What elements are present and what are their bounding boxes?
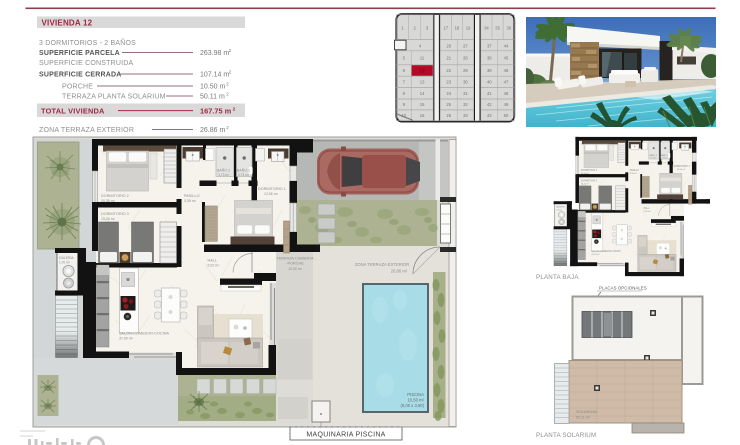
svg-text:50: 50	[504, 113, 509, 118]
svg-text:26.86 m: 26.86 m	[200, 127, 225, 134]
svg-text:15: 15	[420, 102, 425, 107]
svg-text:3 DORMITORIOS - 2 BAÑOS: 3 DORMITORIOS - 2 BAÑOS	[39, 38, 136, 47]
svg-text:ZONA TERRAZA EXTERIOR: ZONA TERRAZA EXTERIOR	[39, 127, 134, 134]
svg-text:37: 37	[487, 43, 492, 48]
svg-text:10.50 m: 10.50 m	[200, 84, 225, 91]
svg-text:17: 17	[443, 26, 448, 31]
svg-text:20: 20	[446, 43, 451, 48]
svg-text:ZONA TERRAZA EXTERIOR: ZONA TERRAZA EXTERIOR	[355, 262, 409, 267]
svg-text:DORMITORIO 2: DORMITORIO 2	[101, 194, 129, 198]
svg-text:PLANTA BAJA: PLANTA BAJA	[536, 274, 579, 281]
svg-text:263.98 m: 263.98 m	[200, 50, 229, 57]
svg-text:3,73 m²: 3,73 m²	[238, 173, 250, 177]
svg-text:BAÑO 2: BAÑO 2	[217, 168, 230, 173]
svg-text:10,50 m²: 10,50 m²	[407, 398, 424, 403]
svg-text:12: 12	[419, 68, 425, 74]
svg-text:31: 31	[463, 91, 468, 96]
svg-text:41: 41	[487, 91, 492, 96]
svg-text:PLACAS OPCIONALES: PLACAS OPCIONALES	[599, 286, 647, 291]
svg-text:1,70 m²: 1,70 m²	[59, 261, 70, 265]
svg-text:11: 11	[420, 55, 425, 60]
svg-text:25: 25	[446, 102, 451, 107]
svg-text:10,50 m²: 10,50 m²	[288, 267, 303, 271]
svg-text:23: 23	[446, 80, 451, 85]
svg-text:107.14 m: 107.14 m	[200, 72, 229, 79]
svg-text:TERRAZA PLANTA SOLARIUM: TERRAZA PLANTA SOLARIUM	[62, 94, 166, 101]
svg-text:SOLARIUM: SOLARIUM	[576, 409, 597, 414]
svg-text:24: 24	[446, 91, 451, 96]
svg-text:44: 44	[504, 43, 509, 48]
svg-text:45: 45	[504, 55, 509, 60]
svg-text:43: 43	[487, 113, 492, 118]
svg-text:40: 40	[487, 80, 492, 85]
svg-text:VIVIENDA 12: VIVIENDA 12	[42, 19, 93, 28]
svg-text:BAÑO 1: BAÑO 1	[237, 168, 250, 173]
svg-text:12,06 m²: 12,06 m²	[264, 192, 279, 196]
svg-text:39: 39	[487, 68, 492, 73]
svg-text:14: 14	[420, 91, 425, 96]
svg-text:29: 29	[463, 68, 468, 73]
svg-text:27: 27	[463, 43, 468, 48]
svg-text:33: 33	[463, 113, 468, 118]
svg-text:SUPERFICIE CONSTRUIDA: SUPERFICIE CONSTRUIDA	[39, 60, 134, 67]
svg-text:37,09 m²: 37,09 m²	[119, 337, 134, 341]
svg-text:HALL: HALL	[208, 259, 218, 263]
svg-text:36: 36	[506, 26, 511, 31]
svg-text:5,02 m²: 5,02 m²	[208, 264, 221, 268]
svg-text:(6,00 x 3,50): (6,00 x 3,50)	[400, 403, 424, 408]
svg-text:26: 26	[446, 113, 451, 118]
svg-text:2: 2	[233, 107, 236, 113]
svg-text:38: 38	[487, 55, 492, 60]
svg-text:50,11 m²: 50,11 m²	[576, 416, 591, 420]
svg-text:DORMITORIO 3: DORMITORIO 3	[101, 212, 129, 216]
svg-text:MAQUINARIA PISCINA: MAQUINARIA PISCINA	[306, 432, 385, 439]
svg-text:13: 13	[420, 80, 425, 85]
svg-text:GALERIA: GALERIA	[59, 256, 74, 260]
svg-text:10,26 m²: 10,26 m²	[101, 217, 116, 221]
svg-text:16: 16	[420, 113, 425, 118]
svg-text:3,35 m²: 3,35 m²	[184, 199, 197, 203]
svg-text:DORMITORIO 1: DORMITORIO 1	[258, 187, 286, 191]
svg-text:-PORCHE: -PORCHE	[286, 262, 304, 266]
svg-text:21: 21	[446, 55, 451, 60]
svg-text:SALÓN-COMEDOR-COCINA: SALÓN-COMEDOR-COCINA	[119, 331, 169, 336]
svg-text:47: 47	[504, 80, 509, 85]
svg-text:10,26 m²: 10,26 m²	[101, 199, 116, 203]
svg-text:34: 34	[484, 26, 489, 31]
svg-text:49: 49	[504, 102, 509, 107]
svg-text:48: 48	[504, 91, 509, 96]
svg-text:3,73 m²: 3,73 m²	[218, 173, 230, 177]
svg-text:32: 32	[463, 102, 468, 107]
svg-text:PASILLO: PASILLO	[184, 194, 200, 198]
svg-text:167.75 m: 167.75 m	[200, 107, 232, 116]
svg-text:26,86 m²: 26,86 m²	[391, 269, 408, 274]
svg-text:35: 35	[495, 26, 500, 31]
svg-text:SUPERFICIE PARCELA: SUPERFICIE PARCELA	[39, 50, 120, 57]
svg-text:30: 30	[463, 80, 468, 85]
svg-text:PLANTA SOLARIUM: PLANTA SOLARIUM	[536, 432, 596, 439]
svg-text:TOTAL VIVIENDA: TOTAL VIVIENDA	[41, 107, 105, 116]
svg-text:42: 42	[487, 102, 492, 107]
svg-text:28: 28	[463, 55, 468, 60]
svg-text:SUPERFICIE CERRADA: SUPERFICIE CERRADA	[39, 72, 122, 79]
svg-text:18: 18	[455, 26, 460, 31]
svg-text:PISCINA: PISCINA	[407, 392, 424, 397]
svg-text:46: 46	[504, 68, 509, 73]
svg-text:TERRAZA CUBIERTA: TERRAZA CUBIERTA	[276, 257, 314, 261]
svg-text:22: 22	[446, 68, 451, 73]
svg-text:PORCHE: PORCHE	[62, 84, 93, 91]
svg-text:50.11 m: 50.11 m	[200, 94, 225, 101]
svg-text:19: 19	[466, 26, 471, 31]
